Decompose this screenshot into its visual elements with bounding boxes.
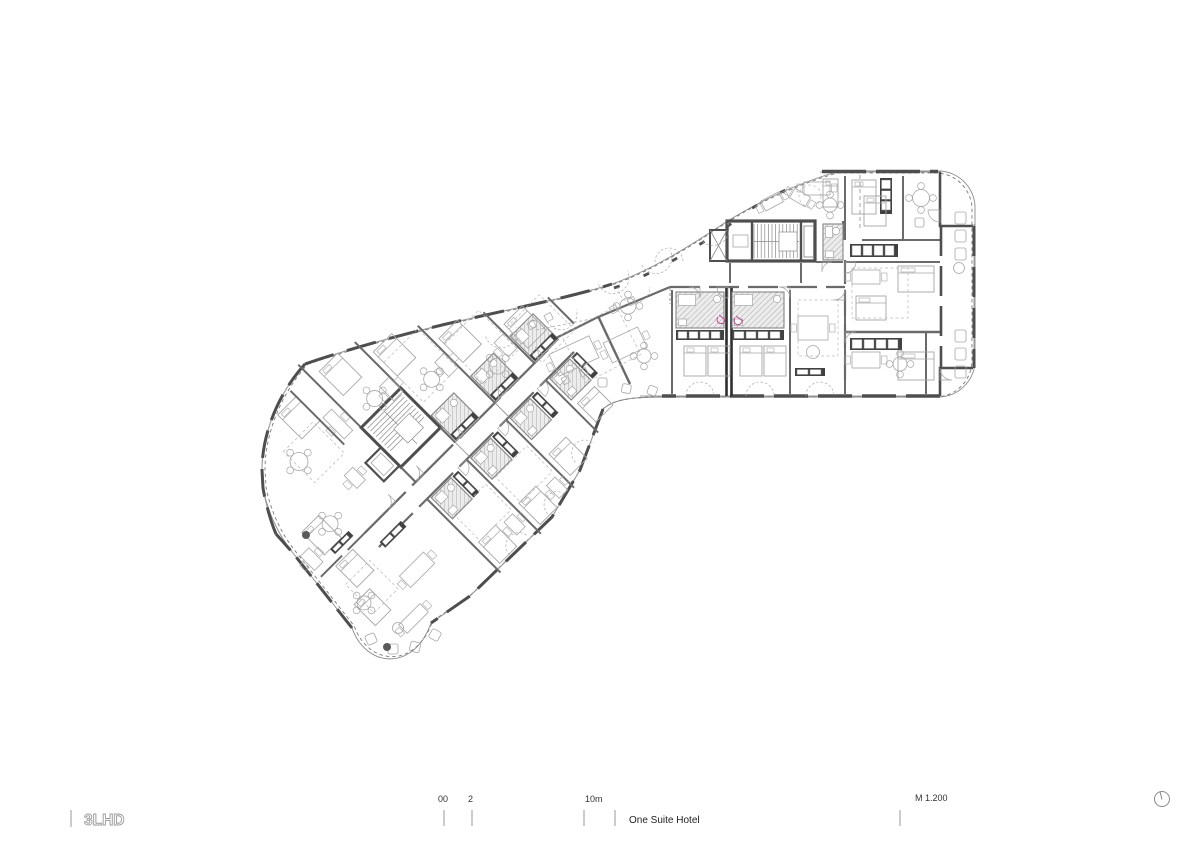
svg-text:2: 2: [468, 794, 473, 804]
svg-text:M 1.200: M 1.200: [915, 793, 948, 803]
svg-text:10m: 10m: [585, 794, 603, 804]
svg-text:One Suite Hotel: One Suite Hotel: [629, 815, 700, 826]
svg-text:3LHD: 3LHD: [84, 812, 124, 829]
svg-text:00: 00: [438, 794, 448, 804]
